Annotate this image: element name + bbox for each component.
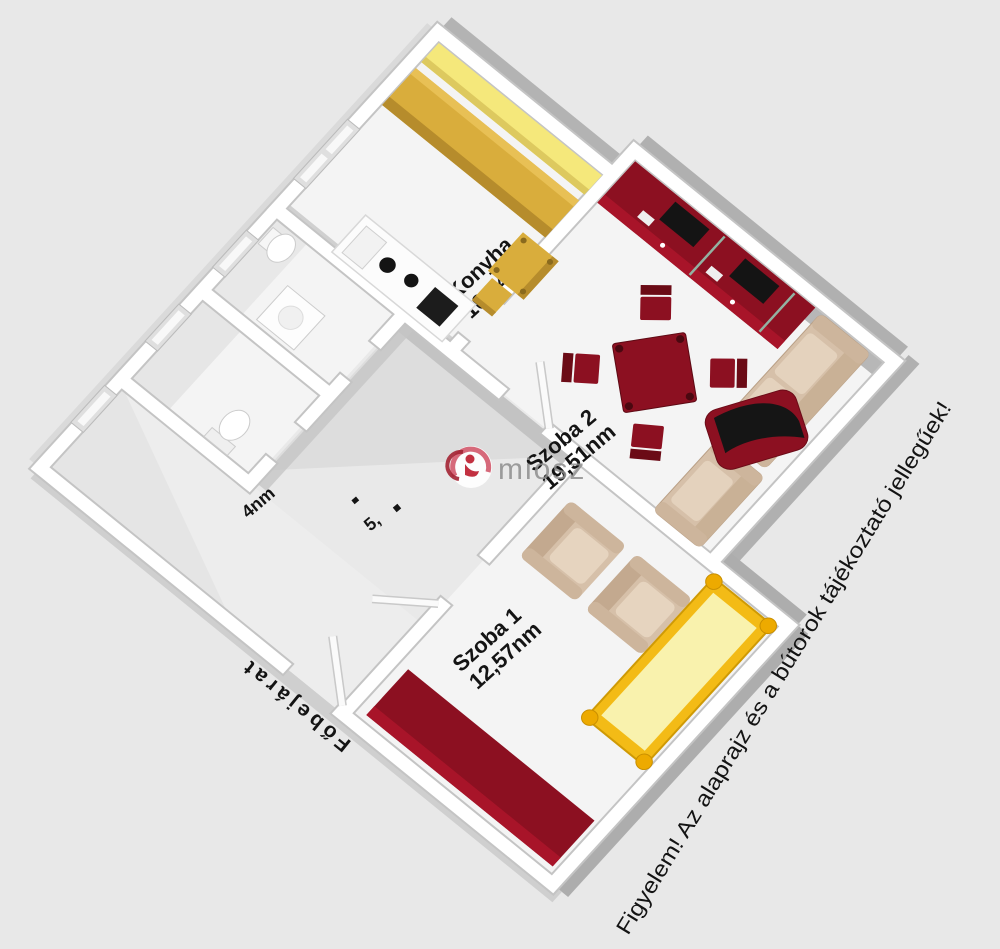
- watermark-logo-figure: [466, 455, 475, 464]
- watermark-brand: miosz: [498, 453, 586, 486]
- dining-chair: [710, 358, 748, 387]
- watermark: miosz: [447, 446, 586, 488]
- dining-chair: [561, 353, 600, 384]
- floor-plan-image: 4nm 5, Konyha 10,54nm Szoba 2 19,51: [0, 0, 1000, 949]
- dining-table: [612, 332, 697, 413]
- dining-chair: [640, 285, 671, 320]
- dining-chair: [630, 423, 665, 461]
- floor-plan-canvas: 4nm 5, Konyha 10,54nm Szoba 2 19,51: [0, 0, 1000, 949]
